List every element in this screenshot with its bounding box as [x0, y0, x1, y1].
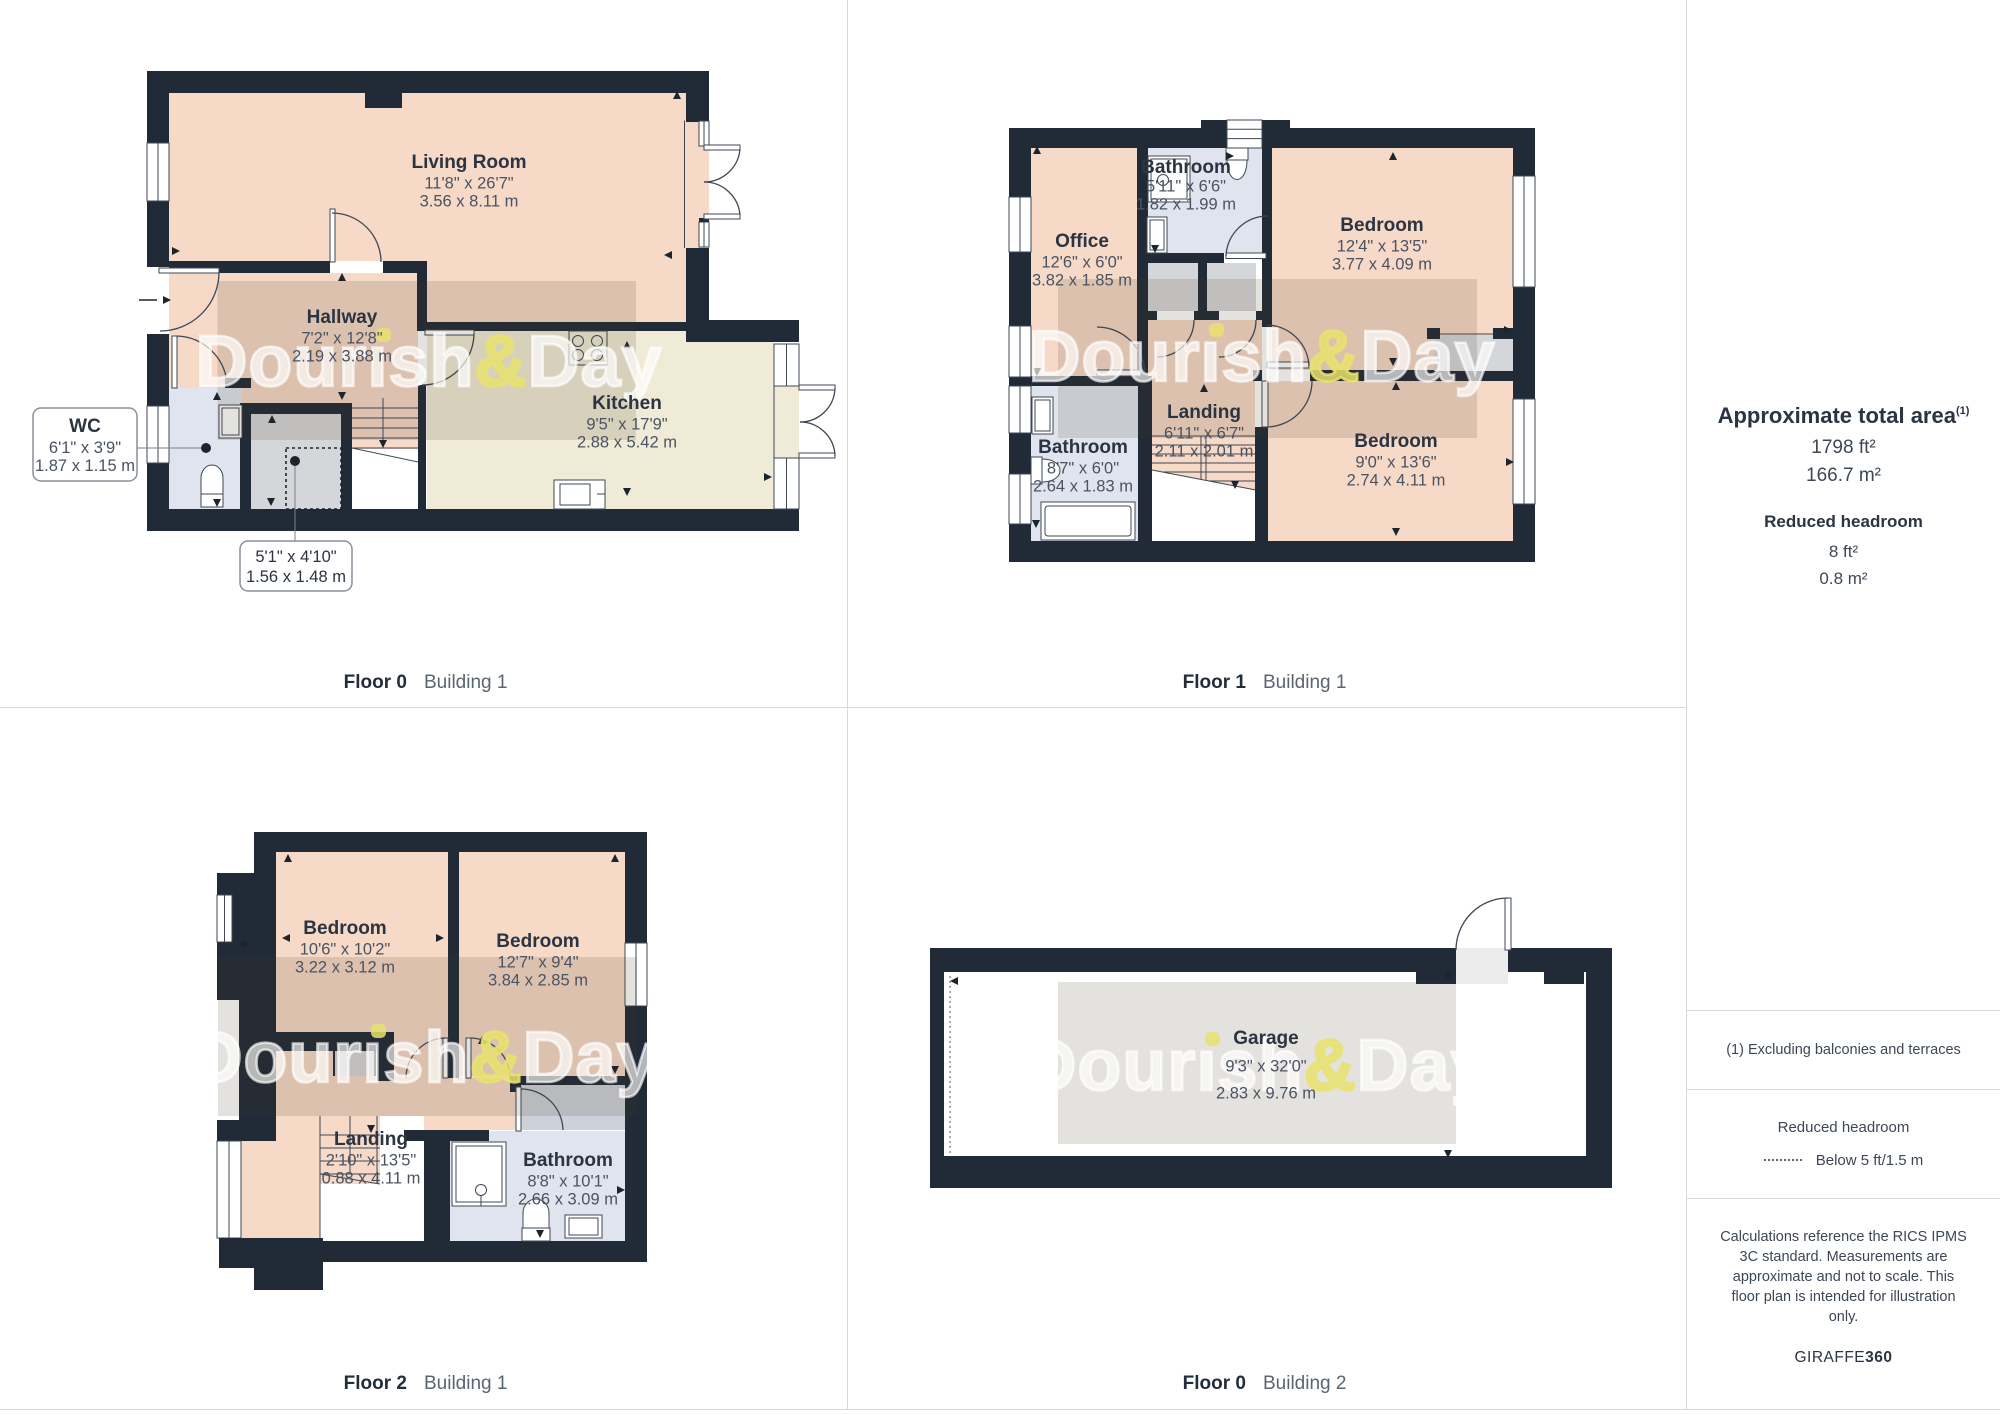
svg-text:3.77 x 4.09 m: 3.77 x 4.09 m — [1332, 256, 1432, 274]
svg-text:1.82 x 1.99 m: 1.82 x 1.99 m — [1136, 196, 1236, 214]
svg-text:Kitchen: Kitchen — [592, 393, 662, 414]
svg-text:Floor 0: Floor 0 — [344, 672, 407, 693]
svg-text:8'8" x 10'1": 8'8" x 10'1" — [527, 1173, 608, 1191]
svg-text:12'7" x 9'4": 12'7" x 9'4" — [497, 954, 578, 972]
svg-text:3.84 x 2.85 m: 3.84 x 2.85 m — [488, 972, 588, 990]
svg-text:WC: WC — [69, 416, 101, 437]
svg-text:Dourısh&Day: Dourısh&Day — [1028, 317, 1495, 397]
svg-text:Floor 1: Floor 1 — [1183, 672, 1247, 693]
svg-text:1.56 x 1.48 m: 1.56 x 1.48 m — [246, 568, 346, 586]
svg-text:Floor 2: Floor 2 — [344, 1373, 407, 1394]
svg-text:5'1" x 4'10": 5'1" x 4'10" — [255, 548, 336, 566]
svg-text:2.88 x 5.42 m: 2.88 x 5.42 m — [577, 434, 677, 452]
svg-text:7'2" x 12'8": 7'2" x 12'8" — [301, 330, 382, 348]
svg-text:2.64 x 1.83 m: 2.64 x 1.83 m — [1033, 478, 1133, 496]
svg-text:Bedroom: Bedroom — [1340, 215, 1423, 236]
svg-text:Building 1: Building 1 — [424, 1373, 507, 1394]
svg-text:9'3" x 32'0": 9'3" x 32'0" — [1225, 1058, 1306, 1076]
svg-text:Hallway: Hallway — [307, 307, 378, 328]
svg-text:3.56 x 8.11 m: 3.56 x 8.11 m — [420, 193, 519, 211]
svg-text:Landing: Landing — [334, 1129, 408, 1150]
svg-text:3.22 x 3.12 m: 3.22 x 3.12 m — [295, 959, 395, 977]
svg-text:Floor 0: Floor 0 — [1183, 1373, 1246, 1394]
svg-text:10'6" x 10'2": 10'6" x 10'2" — [300, 941, 391, 959]
svg-text:Office: Office — [1055, 231, 1109, 252]
svg-text:9'5" x 17'9": 9'5" x 17'9" — [586, 416, 667, 434]
svg-text:Bathroom: Bathroom — [1141, 157, 1231, 178]
svg-text:6'1" x 3'9": 6'1" x 3'9" — [49, 439, 121, 457]
svg-text:Bedroom: Bedroom — [496, 931, 579, 952]
svg-text:8'7" x 6'0": 8'7" x 6'0" — [1047, 460, 1119, 478]
svg-text:3.82 x 1.85 m: 3.82 x 1.85 m — [1032, 272, 1132, 290]
svg-text:Building 1: Building 1 — [424, 672, 507, 693]
svg-text:Building 2: Building 2 — [1263, 1373, 1346, 1394]
svg-text:Bedroom: Bedroom — [303, 918, 386, 939]
svg-text:2.83 x 9.76 m: 2.83 x 9.76 m — [1216, 1085, 1316, 1103]
svg-text:2'10" x 13'5": 2'10" x 13'5" — [326, 1152, 417, 1170]
svg-text:2.74 x 4.11 m: 2.74 x 4.11 m — [1347, 472, 1446, 490]
svg-text:6'11" x 6'7": 6'11" x 6'7" — [1164, 425, 1244, 443]
svg-text:12'6" x 6'0": 12'6" x 6'0" — [1041, 254, 1122, 272]
svg-text:Landing: Landing — [1167, 402, 1241, 423]
svg-text:2.66 x 3.09 m: 2.66 x 3.09 m — [518, 1191, 618, 1209]
svg-text:1.87 x 1.15 m: 1.87 x 1.15 m — [35, 457, 135, 475]
svg-text:Garage: Garage — [1233, 1028, 1298, 1049]
svg-text:Building 1: Building 1 — [1263, 672, 1346, 693]
svg-text:12'4" x 13'5": 12'4" x 13'5" — [1337, 238, 1428, 256]
svg-text:Bathroom: Bathroom — [523, 1150, 613, 1171]
svg-text:0.88 x 4.11 m: 0.88 x 4.11 m — [322, 1170, 421, 1188]
svg-text:5'11" x 6'6": 5'11" x 6'6" — [1146, 178, 1226, 196]
svg-text:11'8" x 26'7": 11'8" x 26'7" — [424, 175, 513, 193]
svg-text:9'0" x 13'6": 9'0" x 13'6" — [1355, 454, 1436, 472]
svg-text:2.11 x 2.01 m: 2.11 x 2.01 m — [1155, 443, 1254, 461]
svg-text:Bedroom: Bedroom — [1354, 431, 1437, 452]
svg-text:Living Room: Living Room — [411, 152, 526, 173]
svg-text:2.19 x 3.88 m: 2.19 x 3.88 m — [292, 348, 392, 366]
svg-text:Bathroom: Bathroom — [1038, 437, 1128, 458]
svg-text:Dourısh&Day: Dourısh&Day — [195, 322, 662, 402]
svg-text:Dourısh&Day: Dourısh&Day — [190, 1018, 657, 1098]
